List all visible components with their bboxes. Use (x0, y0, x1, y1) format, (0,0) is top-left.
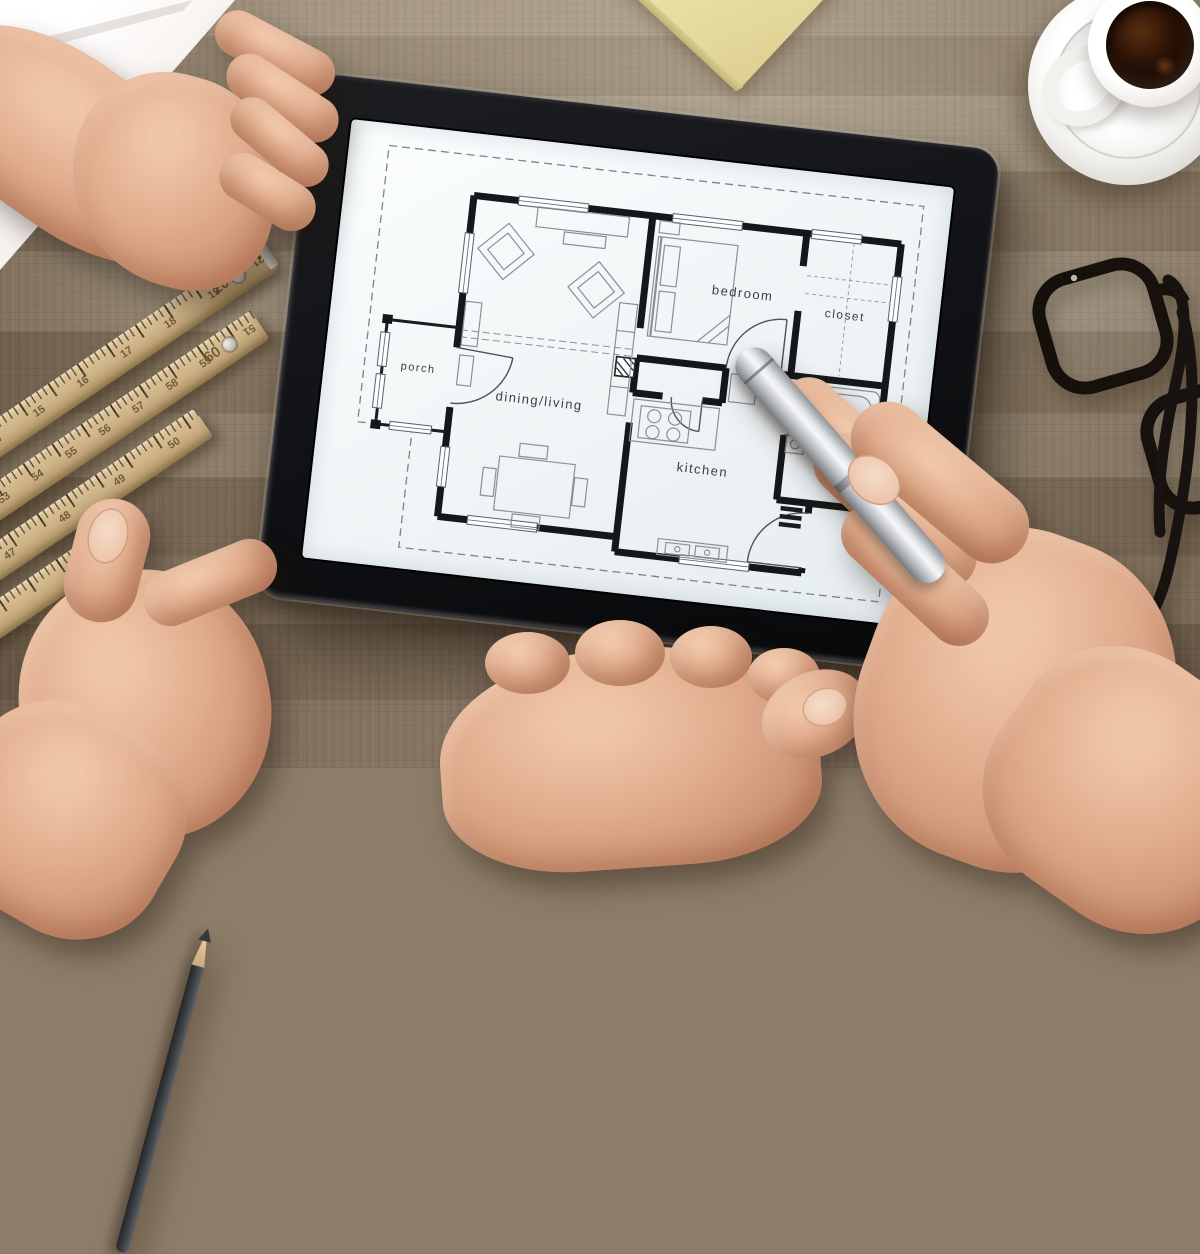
hand-holding-stylus (740, 330, 1200, 780)
pencil-lead-tip (198, 927, 214, 943)
porch-post (370, 419, 381, 429)
ruler-number: 14 (0, 433, 4, 450)
pencil (115, 927, 214, 1254)
room-label-closet: closet (824, 306, 866, 324)
glasses-glint (1071, 275, 1077, 281)
knuckle (485, 632, 570, 694)
room-label-kitchen: kitchen (676, 459, 729, 480)
room-label-dining-living: dining/living (495, 388, 584, 413)
stylus-cap-line (743, 358, 774, 385)
left-hand-holding-tablet (0, 20, 420, 340)
knuckle (575, 620, 665, 686)
room-label-bedroom: bedroom (711, 282, 774, 304)
chimney (615, 357, 636, 378)
pencil-body (115, 964, 204, 1253)
coffee-surface (1106, 1, 1194, 89)
pencil-wood-tip (192, 939, 211, 967)
hand-holding-pencil (0, 480, 330, 770)
room-label-porch: porch (400, 360, 436, 376)
